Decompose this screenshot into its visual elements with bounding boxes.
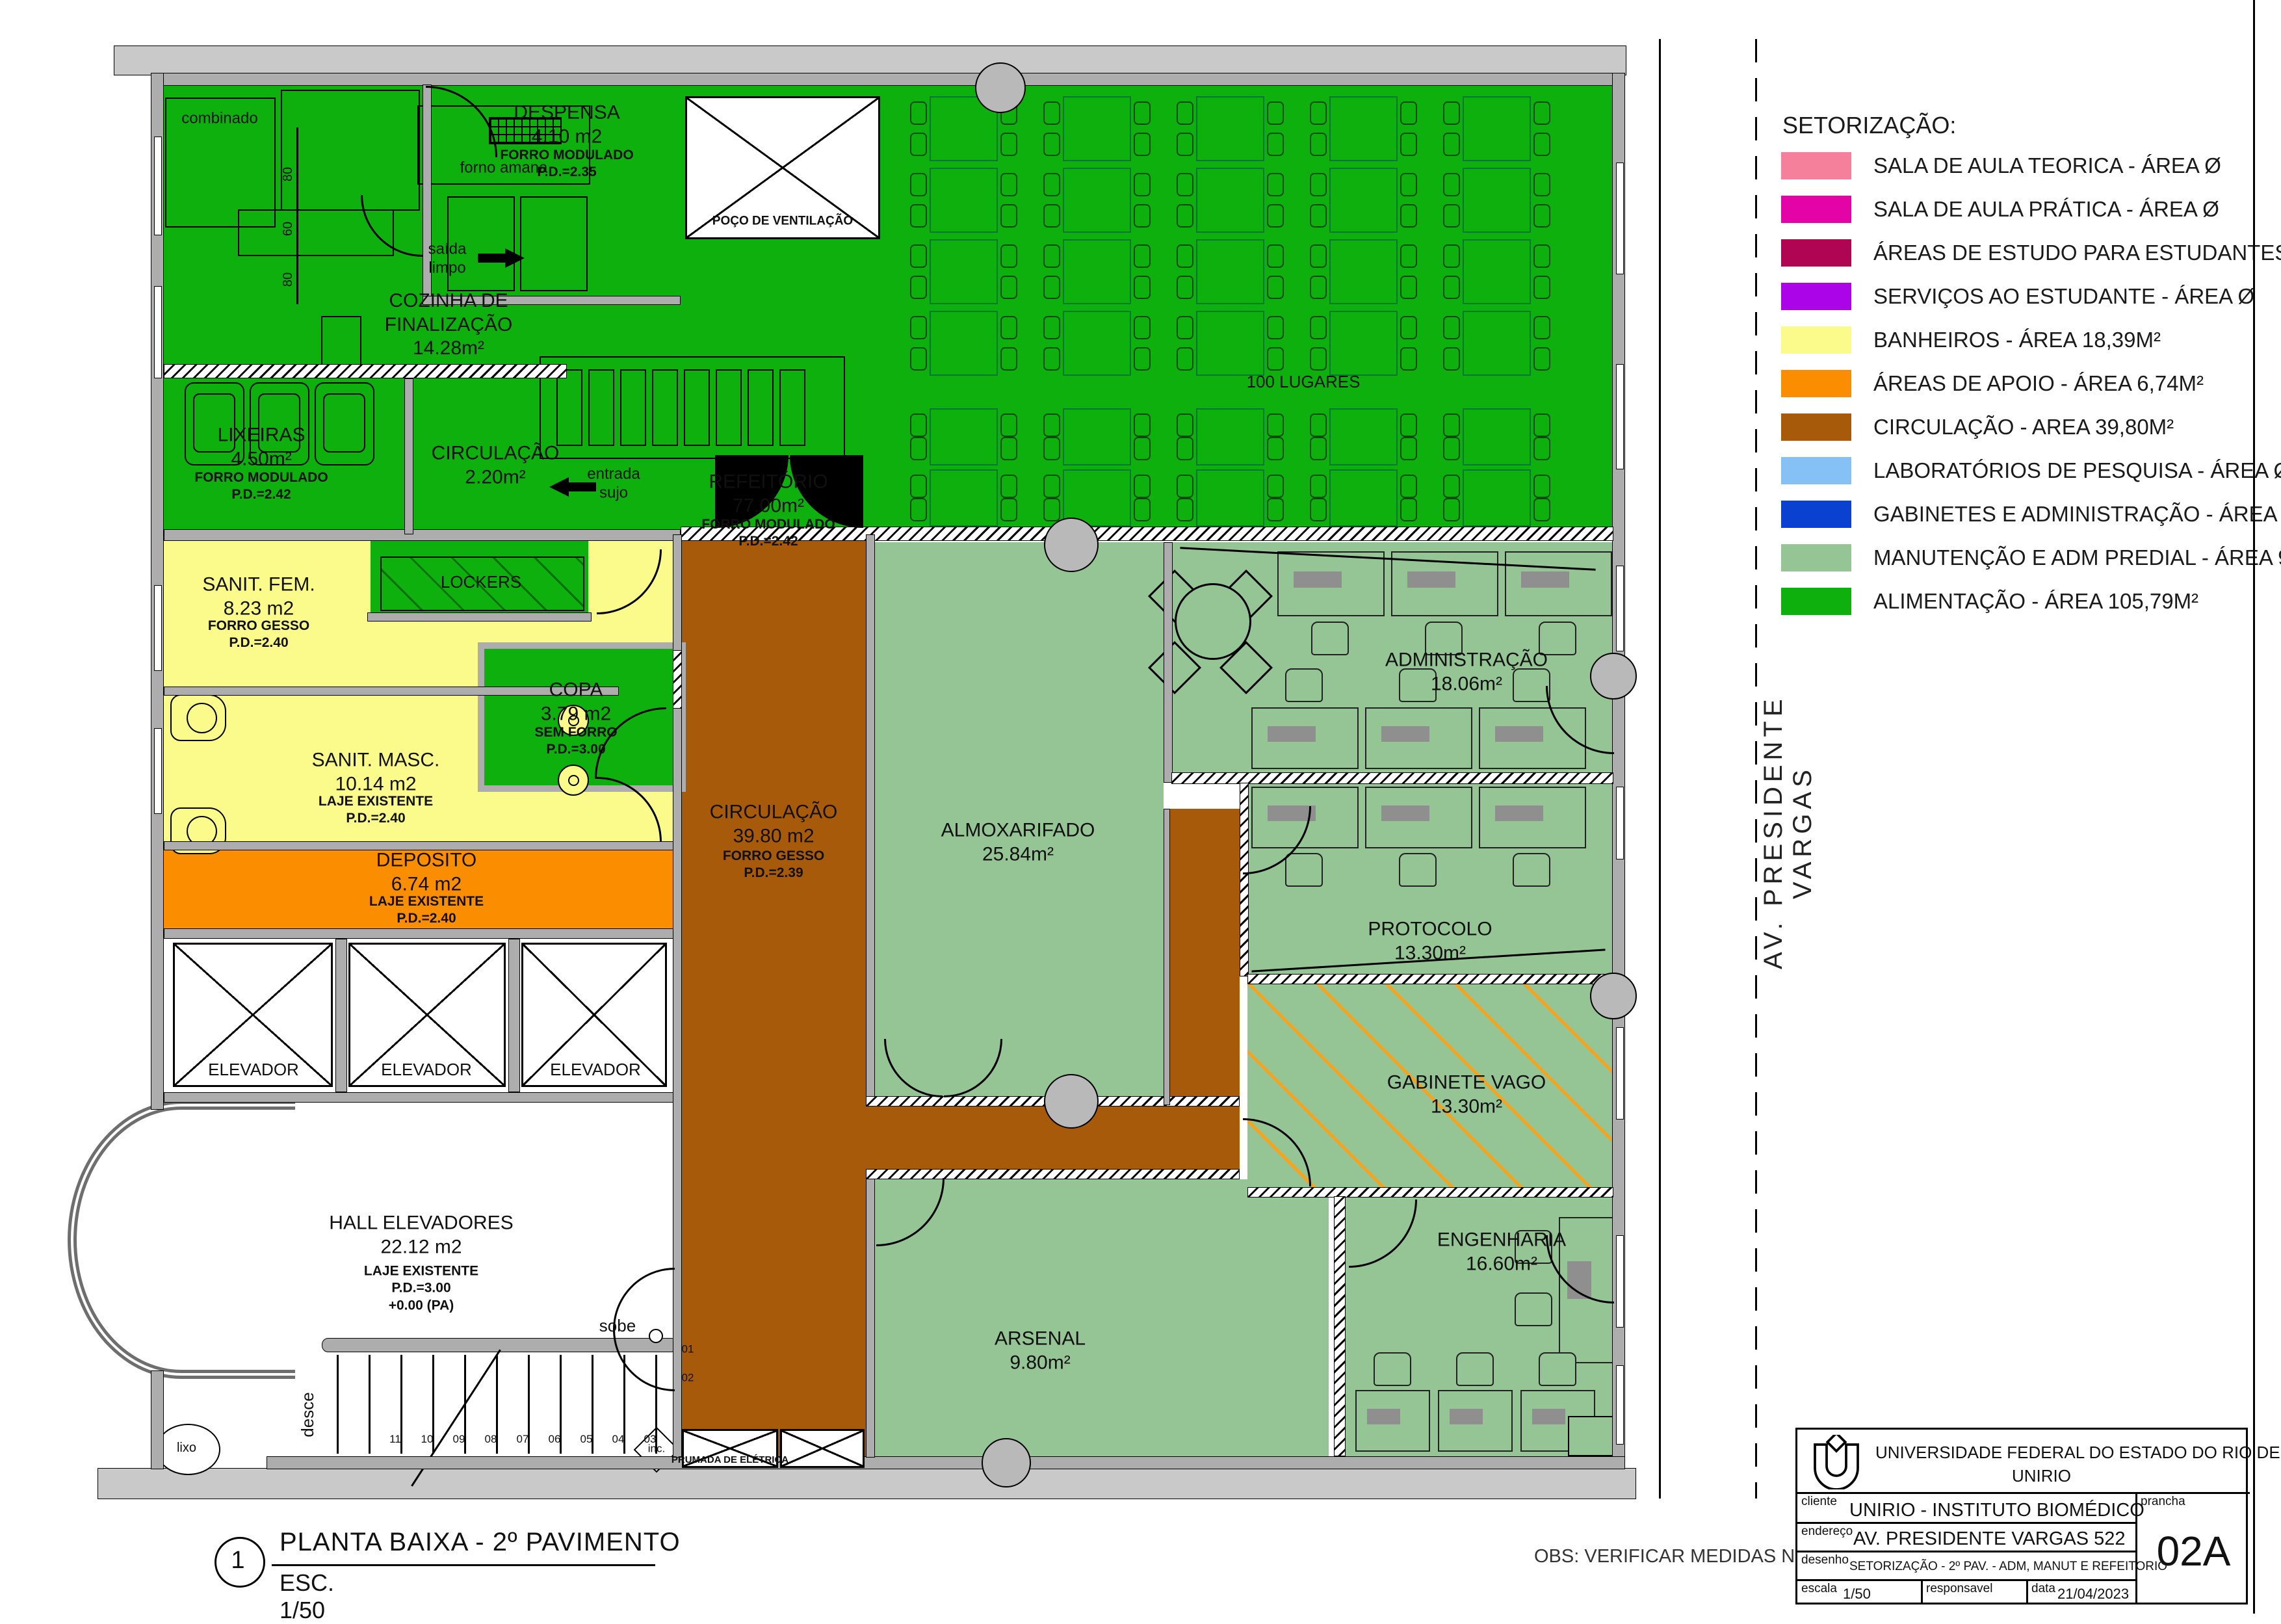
label-elevador-2: ELEVADOR [381,1060,472,1080]
chair [1267,413,1284,437]
chair [1043,244,1060,268]
legend-item: MANUTENÇÃO E ADM PREDIAL - ÁREA 96,90M² [1781,544,2275,571]
dining-table [930,408,998,465]
chair [1000,437,1017,460]
window [1616,1365,1624,1445]
chair [1443,437,1460,460]
chair [1134,347,1151,371]
label-circ-cozinha: CIRCULAÇÃO 2.20m² [432,441,560,489]
dining-table [1063,239,1131,304]
desk [1251,707,1359,769]
stair-number: 04 [605,1433,631,1447]
office-chair [1399,853,1437,887]
dining-table [1463,96,1531,161]
tb-line [1797,1522,2135,1524]
escala-label: escala [1801,1582,1837,1596]
chair [910,244,927,268]
label-lixo: lixo [177,1440,196,1456]
corridor-vertical [681,534,866,1458]
cliente-value: UNIRIO - INSTITUTO BIOMÉDICO [1849,1500,2144,1521]
chair [1400,204,1417,228]
chair [1134,437,1151,460]
chair [1310,101,1327,125]
chair [1000,133,1017,156]
chair [1134,276,1151,299]
label-entrada: entrada sujo [587,465,640,503]
label-arsenal: ARSENAL 9.80m² [995,1327,1086,1374]
legend: SETORIZAÇÃO: SALA DE AULA TEORICA - ÁREA… [1781,112,2275,645]
chair [1533,347,1550,371]
counter-slot [556,369,582,446]
legend-item: ALIMENTAÇÃO - ÁREA 105,79M² [1781,588,2275,615]
university-acronym: UNIRIO [2012,1466,2071,1486]
label-almoxarifado: ALMOXARIFADO 25.84m² [941,819,1095,866]
counter-slot [779,369,805,446]
label-lockers: LOCKERS [441,572,521,593]
desk [1355,1390,1430,1452]
chair [1533,413,1550,437]
spec-refeitorio: FORRO MODULADO P.D.=2.42 [701,516,835,551]
chair [1400,475,1417,498]
window [154,286,162,378]
chair [1134,316,1151,339]
data-label: data [2031,1582,2055,1596]
wall [1164,542,1173,783]
chair [1533,173,1550,196]
chair [1533,244,1550,268]
chair [1443,475,1460,498]
wall-hatched [1171,772,1613,784]
legend-label: CIRCULAÇÃO - AREA 39,80M² [1873,413,2174,441]
chair [1310,173,1327,196]
wall [866,534,875,1105]
chair [1310,437,1327,460]
chair [1134,413,1151,437]
dining-table [1196,311,1264,376]
chair [1310,204,1327,228]
dining-table [930,469,998,527]
chair [1043,173,1060,196]
tb-line [1921,1579,1923,1604]
chair [1267,276,1284,299]
printer [1568,1416,1616,1456]
chair [1000,244,1017,268]
chair [1000,204,1017,228]
column [975,62,1026,113]
chair [910,101,927,125]
corridor-arm-vertical [1168,809,1240,1105]
window [1616,1235,1624,1328]
dining-table [930,239,998,304]
university-name: UNIVERSIDADE FEDERAL DO ESTADO DO RIO DE… [1875,1443,2281,1463]
legend-swatch [1781,239,1851,267]
desk [1365,707,1472,769]
curb-line [1659,39,1661,1499]
label-circulacao: CIRCULAÇÃO 39.80 m2 [710,800,838,848]
chair [910,173,927,196]
chair [1267,133,1284,156]
desk [1479,787,1586,848]
window [1616,787,1624,859]
saida-arrow-head [505,248,525,268]
wall [151,1370,164,1469]
chair [1443,347,1460,371]
legend-label: ÁREAS DE ESTUDO PARA ESTUDANTES - ÁREA Ø [1873,239,2281,267]
stair-number: 10 [414,1433,440,1447]
round-table [1175,583,1251,660]
chair [1310,244,1327,268]
wall-hatched [1247,974,1613,984]
label-01: 01 [682,1343,694,1357]
window [154,728,162,814]
chair [1043,316,1060,339]
chair [910,204,927,228]
street-name: AV. PRESIDENTE VARGAS [1759,657,1818,1008]
legend-item: LABORATÓRIOS DE PESQUISA - ÁREA Ø [1781,457,2275,484]
chair [1177,276,1193,299]
chair [1443,133,1460,156]
wall [335,939,347,1092]
wall-hatched [164,364,567,378]
legend-label: SERVIÇOS AO ESTUDANTE - ÁREA Ø [1873,283,2254,310]
label-prumada: PRUMADA DE ELÉTRICA [671,1454,789,1466]
label-deposito: DEPOSITO 6.74 m2 [376,848,476,896]
label-despensa: DESPENSA 4.10 m2 [514,101,619,148]
chair [1310,133,1327,156]
tb-line [1797,1579,2135,1581]
dining-table [1196,96,1264,161]
sidewalk-bottom [98,1468,1636,1499]
chair [1043,276,1060,299]
dining-table [930,311,998,376]
chair [1177,475,1193,498]
chair [1443,498,1460,521]
cliente-label: cliente [1801,1495,1837,1509]
chair [1134,133,1151,156]
dining-table [1196,469,1264,527]
chair [1267,347,1284,371]
chair [1443,316,1460,339]
dining-table [1196,408,1264,465]
dining-table [1463,469,1531,527]
prancha-value: 02A [2137,1527,2250,1575]
legend-label: LABORATÓRIOS DE PESQUISA - ÁREA Ø [1873,457,2281,484]
window [1616,566,1624,651]
room-arsenal [874,1179,1329,1456]
chair [1310,475,1327,498]
label-lugares: 100 LUGARES [1247,372,1361,393]
chair [1043,133,1060,156]
chair [1177,437,1193,460]
stair-number: 07 [510,1433,536,1447]
chair [1177,133,1193,156]
detail-number: 1 [215,1537,261,1584]
label-combinado: combinado [181,109,257,127]
dining-table [1463,311,1531,376]
legend-swatch [1781,588,1851,615]
chair [1267,437,1284,460]
chair [1177,204,1193,228]
legend-swatch [1781,370,1851,397]
electrical-riser-2 [780,1429,865,1468]
endereco-label: endereço [1801,1525,1853,1539]
chair [910,276,927,299]
wall [164,1092,681,1103]
chair [1400,276,1417,299]
legend-swatch [1781,544,1851,571]
wall [164,928,681,939]
chair [1177,101,1193,125]
window [1616,163,1624,274]
window [154,585,162,671]
office-chair [1513,853,1550,887]
chair [1177,413,1193,437]
chair [1000,347,1017,371]
sidewalk-top [114,46,1626,75]
office-chair [1311,622,1349,655]
dim-line [296,127,298,304]
legend-item: SALA DE AULA PRÁTICA - ÁREA Ø [1781,196,2275,223]
tb-line [1797,1551,2135,1552]
spec-sanit-fem: FORRO GESSO P.D.=2.40 [208,618,309,652]
dim-80a: 80 [280,167,296,181]
label-administracao: ADMINISTRAÇÃO 18.06m² [1385,648,1548,696]
legend-swatch [1781,413,1851,441]
escala-value: 1/50 [1843,1586,1871,1603]
counter-slot [620,369,646,446]
dim-80b: 80 [280,272,296,287]
stair-number: 05 [573,1433,599,1447]
column [1590,973,1637,1019]
chair [1177,173,1193,196]
legend-item: SERVIÇOS AO ESTUDANTE - ÁREA Ø [1781,283,2275,310]
legend-label: BANHEIROS - ÁREA 18,39M² [1873,326,2161,354]
chair [1267,316,1284,339]
column [1044,1074,1099,1129]
tb-line [2026,1579,2028,1604]
label-elevador-3: ELEVADOR [550,1060,641,1080]
chair [1267,498,1284,521]
title-block: UNIVERSIDADE FEDERAL DO ESTADO DO RIO DE… [1795,1428,2248,1604]
chair [1043,413,1060,437]
chair [1000,173,1017,196]
label-sanit-fem: SANIT. FEM. 8.23 m2 [202,573,315,620]
label-sobe: sobe [599,1316,636,1337]
legend-swatch [1781,196,1851,223]
legend-rows: SALA DE AULA TEORICA - ÁREA ØSALA DE AUL… [1781,112,2275,645]
chair [910,437,927,460]
legend-swatch [1781,283,1851,310]
legend-label: SALA DE AULA PRÁTICA - ÁREA Ø [1873,196,2219,223]
counter-slot [588,369,614,446]
spec-hall: LAJE EXISTENTE P.D.=3.00 +0.00 (PA) [364,1263,478,1315]
spec-deposito: LAJE EXISTENTE P.D.=2.40 [369,893,484,928]
chair [1400,173,1417,196]
chair [1400,133,1417,156]
chair [1443,204,1460,228]
lot-boundary-dashed [1755,39,1757,1499]
chair [1267,204,1284,228]
dining-table [1063,96,1131,161]
stair-step [337,1355,339,1454]
chair [1533,204,1550,228]
dining-table [1463,168,1531,233]
legend-swatch [1781,457,1851,484]
dining-table [1063,311,1131,376]
counter-slot [716,369,742,446]
chair [1177,316,1193,339]
desk [1365,787,1472,848]
wall [866,1170,875,1458]
dining-table [930,168,998,233]
chair [1310,347,1327,371]
chair [1177,244,1193,268]
counter-slot [652,369,678,446]
dining-table [1463,239,1531,304]
office-chair [1456,1352,1494,1386]
chair [1134,475,1151,498]
tb-line [1797,1492,2250,1494]
label-lixeiras: LIXEIRAS 4.50m² [217,423,305,471]
view-title: PLANTA BAIXA - 2º PAVIMENTO [280,1528,681,1557]
chair [1177,347,1193,371]
legend-item: ÁREAS DE APOIO - ÁREA 6,74M² [1781,370,2275,397]
label-gabinete: GABINETE VAGO 13.30m² [1387,1071,1546,1118]
label-cozinha: COZINHA DE FINALIZAÇÃO 14.28m² [385,289,513,361]
chair [1443,101,1460,125]
chair [1400,244,1417,268]
legend-item: CIRCULAÇÃO - AREA 39,80M² [1781,413,2275,441]
legend-item: SALA DE AULA TEORICA - ÁREA Ø [1781,152,2275,179]
office-chair [1515,1292,1552,1326]
wall [508,939,520,1092]
column [982,1438,1031,1487]
chair [1400,101,1417,125]
bay-window [68,1101,295,1379]
legend-label: GABINETES E ADMINISTRAÇÃO - ÁREA Ø [1873,501,2281,528]
chair [1267,244,1284,268]
responsavel-label: responsavel [1926,1582,1992,1596]
dining-table [1329,408,1398,465]
despensa-cabinet [520,196,588,291]
legend-item: GABINETES E ADMINISTRAÇÃO - ÁREA Ø [1781,501,2275,528]
wall [1164,809,1170,1105]
endereco-value: AV. PRESIDENTE VARGAS 522 [1853,1528,2126,1550]
spec-sanit-masc: LAJE EXISTENTE P.D.=2.40 [319,793,433,828]
desenho-label: desenho [1801,1553,1849,1567]
office-chair [1285,853,1323,887]
dining-table [1329,96,1398,161]
office-chair [1539,1352,1576,1386]
chair [910,133,927,156]
office-chair [1285,668,1323,702]
chair [1000,475,1017,498]
label-hall: HALL ELEVADORES 22.12 m2 [329,1211,513,1259]
dining-table [1196,239,1264,304]
stair-step [369,1355,371,1454]
chair [1400,347,1417,371]
legend-swatch [1781,326,1851,354]
dining-table [1329,239,1398,304]
desk [1505,551,1612,616]
label-copa: COPA 3.79 m2 [541,678,611,726]
chair [1533,498,1550,521]
chair [910,498,927,521]
legend-label: ÁREAS DE APOIO - ÁREA 6,74M² [1873,370,2204,397]
desk [1277,551,1385,616]
equip-stove [281,90,420,211]
wall [151,73,1624,86]
chair [1000,498,1017,521]
chair [1443,276,1460,299]
dining-table [1329,469,1398,527]
chair [1533,101,1550,125]
chair [1533,475,1550,498]
chair [1134,173,1151,196]
chair [910,475,927,498]
dining-table [1196,168,1264,233]
chair [1310,413,1327,437]
chair [1443,173,1460,196]
chair [1310,316,1327,339]
chair [1400,413,1417,437]
wall [267,1456,1625,1469]
label-poco: POÇO DE VENTILAÇÃO [712,213,853,228]
chair [1533,133,1550,156]
counter-slot [748,369,774,446]
counter-slot [684,369,710,446]
chair [1043,475,1060,498]
chair [1043,498,1060,521]
desenho-value: SETORIZAÇÃO - 2º PAV. - ADM, MANUT E REF… [1849,1560,2167,1574]
label-refeitorio: REFEITÓRIO 77.00m² [709,470,828,517]
wall-hatched [1334,1196,1346,1456]
chair [1000,413,1017,437]
legend-swatch [1781,152,1851,179]
wall [164,529,681,541]
chair [1043,347,1060,371]
office-chair [1374,1352,1411,1386]
legend-item: BANHEIROS - ÁREA 18,39M² [1781,326,2275,354]
data-value: 21/04/2023 [2057,1586,2129,1603]
saida-arrow [478,254,505,263]
legend-swatch [1781,501,1851,528]
chair [1267,173,1284,196]
label-engenharia: ENGENHARIA 16.60m² [1437,1228,1566,1276]
stair-number: 08 [478,1433,504,1447]
legend-label: ALIMENTAÇÃO - ÁREA 105,79M² [1873,588,2198,615]
sink [558,765,589,796]
legend-label: MANUTENÇÃO E ADM PREDIAL - ÁREA 96,90M² [1873,544,2281,571]
spec-circulacao: FORRO GESSO P.D.=2.39 [723,848,824,882]
chair [1000,316,1017,339]
label-desce: desce [298,1392,319,1437]
prancha-label: prancha [2141,1495,2185,1509]
chair [1267,475,1284,498]
chair [1400,316,1417,339]
chair [1134,101,1151,125]
chair [1134,204,1151,228]
chair [1310,498,1327,521]
dining-table [1463,408,1531,465]
label-02: 02 [682,1372,694,1385]
stair-number: 09 [446,1433,472,1447]
label-forno: forno amana [460,158,548,177]
spec-copa: SEM FORRO P.D.=3.00 [534,724,617,759]
chair [1533,276,1550,299]
column [1044,517,1099,572]
chair [1043,204,1060,228]
